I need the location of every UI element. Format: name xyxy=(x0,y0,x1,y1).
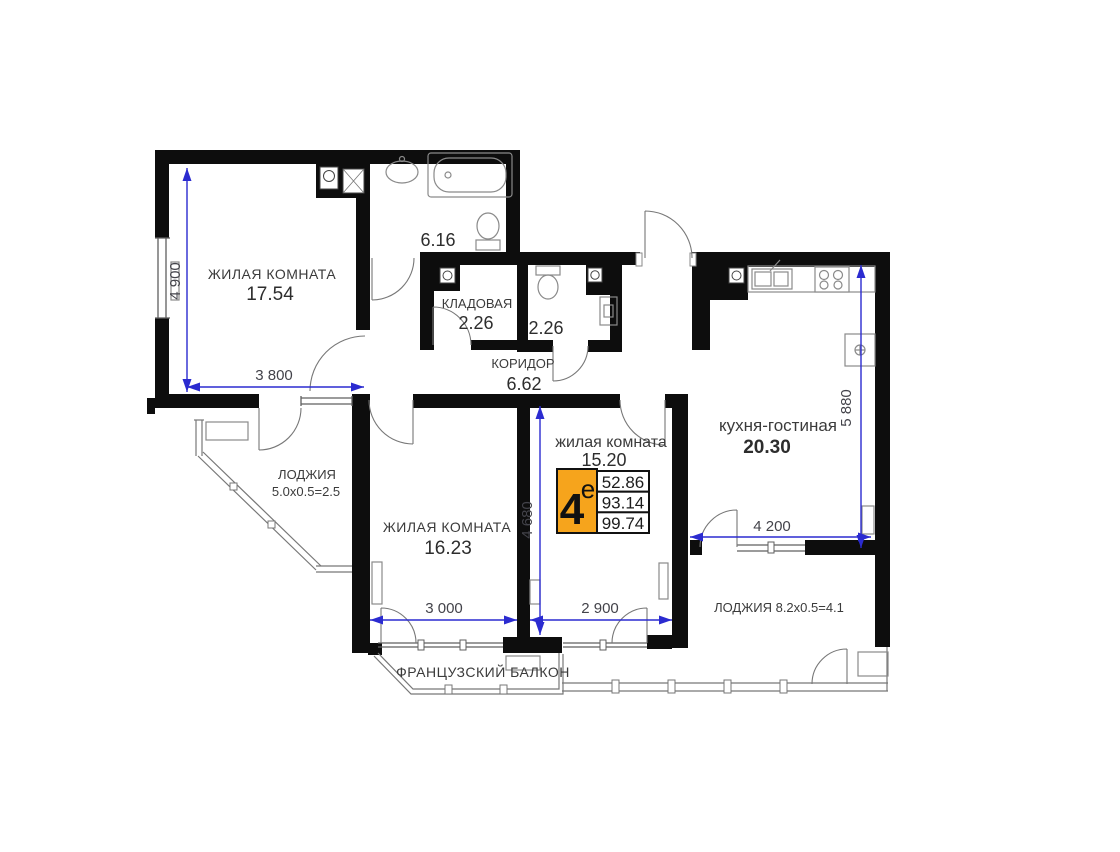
kitchen-counter xyxy=(748,266,875,292)
area-living3: 15.20 xyxy=(581,450,626,470)
area-wc: 2.26 xyxy=(528,318,563,338)
fridge-icon xyxy=(845,334,875,366)
badge-superscript: е xyxy=(581,474,595,504)
floor-plan: 4 900 3 800 4 680 3 000 2 900 5 880 4 20… xyxy=(0,0,1120,852)
vent-shaft-icon xyxy=(316,164,368,198)
dim-living3-height: 4 680 xyxy=(519,501,536,539)
table-icon xyxy=(858,652,888,676)
dim-kitchen-height: 5 880 xyxy=(838,389,855,427)
window xyxy=(563,640,647,650)
area-bathroom: 6.16 xyxy=(420,230,455,250)
dim-living3-width: 2 900 xyxy=(581,600,619,617)
walls xyxy=(147,150,890,655)
dim-left-height: 4 900 xyxy=(167,262,184,300)
badge-value-3: 99.74 xyxy=(602,514,645,533)
label-living3: жилая комната xyxy=(555,434,667,451)
vent-shaft-icon xyxy=(586,265,622,295)
window xyxy=(301,396,352,406)
area-living2: 16.23 xyxy=(424,538,472,559)
label-living1: ЖИЛАЯ КОМНАТА xyxy=(208,266,337,282)
label-loggia-right: ЛОДЖИЯ 8.2х0.5=4.1 xyxy=(714,600,844,615)
badge-value-1: 52.86 xyxy=(602,473,645,492)
toilet-icon xyxy=(476,213,500,250)
floor-plan-page: 4 900 3 800 4 680 3 000 2 900 5 880 4 20… xyxy=(0,0,1120,852)
bench-icon xyxy=(206,422,248,440)
dim-kitchen-width: 4 200 xyxy=(753,518,791,535)
area-living1: 17.54 xyxy=(246,284,294,305)
toilet-icon xyxy=(536,266,560,299)
label-storage: КЛАДОВАЯ xyxy=(442,296,512,311)
label-kitchen: кухня-гостиная xyxy=(719,416,837,435)
loggia-right-rail xyxy=(562,647,888,693)
label-corridor: КОРИДОР xyxy=(491,356,554,371)
size-loggia-left: 5.0х0.5=2.5 xyxy=(272,484,340,499)
label-loggia-left: ЛОДЖИЯ xyxy=(278,467,336,482)
label-french-balcony: ФРАНЦУЗСКИЙ БАЛКОН xyxy=(396,663,570,680)
dim-living1-width: 3 800 xyxy=(255,367,293,384)
vent-shaft-icon xyxy=(424,265,460,291)
area-corridor: 6.62 xyxy=(506,374,541,394)
label-living2: ЖИЛАЯ КОМНАТА xyxy=(383,519,512,535)
stove-icon xyxy=(815,267,849,292)
apartment-badge: 4 е 52.86 93.14 99.74 xyxy=(557,469,649,534)
window xyxy=(737,542,805,553)
dim-living2-width: 3 000 xyxy=(425,600,463,617)
area-kitchen: 20.30 xyxy=(743,437,791,458)
window xyxy=(378,640,503,650)
area-storage: 2.26 xyxy=(458,313,493,333)
vent-shaft-icon xyxy=(692,264,748,300)
badge-value-2: 93.14 xyxy=(602,494,645,513)
